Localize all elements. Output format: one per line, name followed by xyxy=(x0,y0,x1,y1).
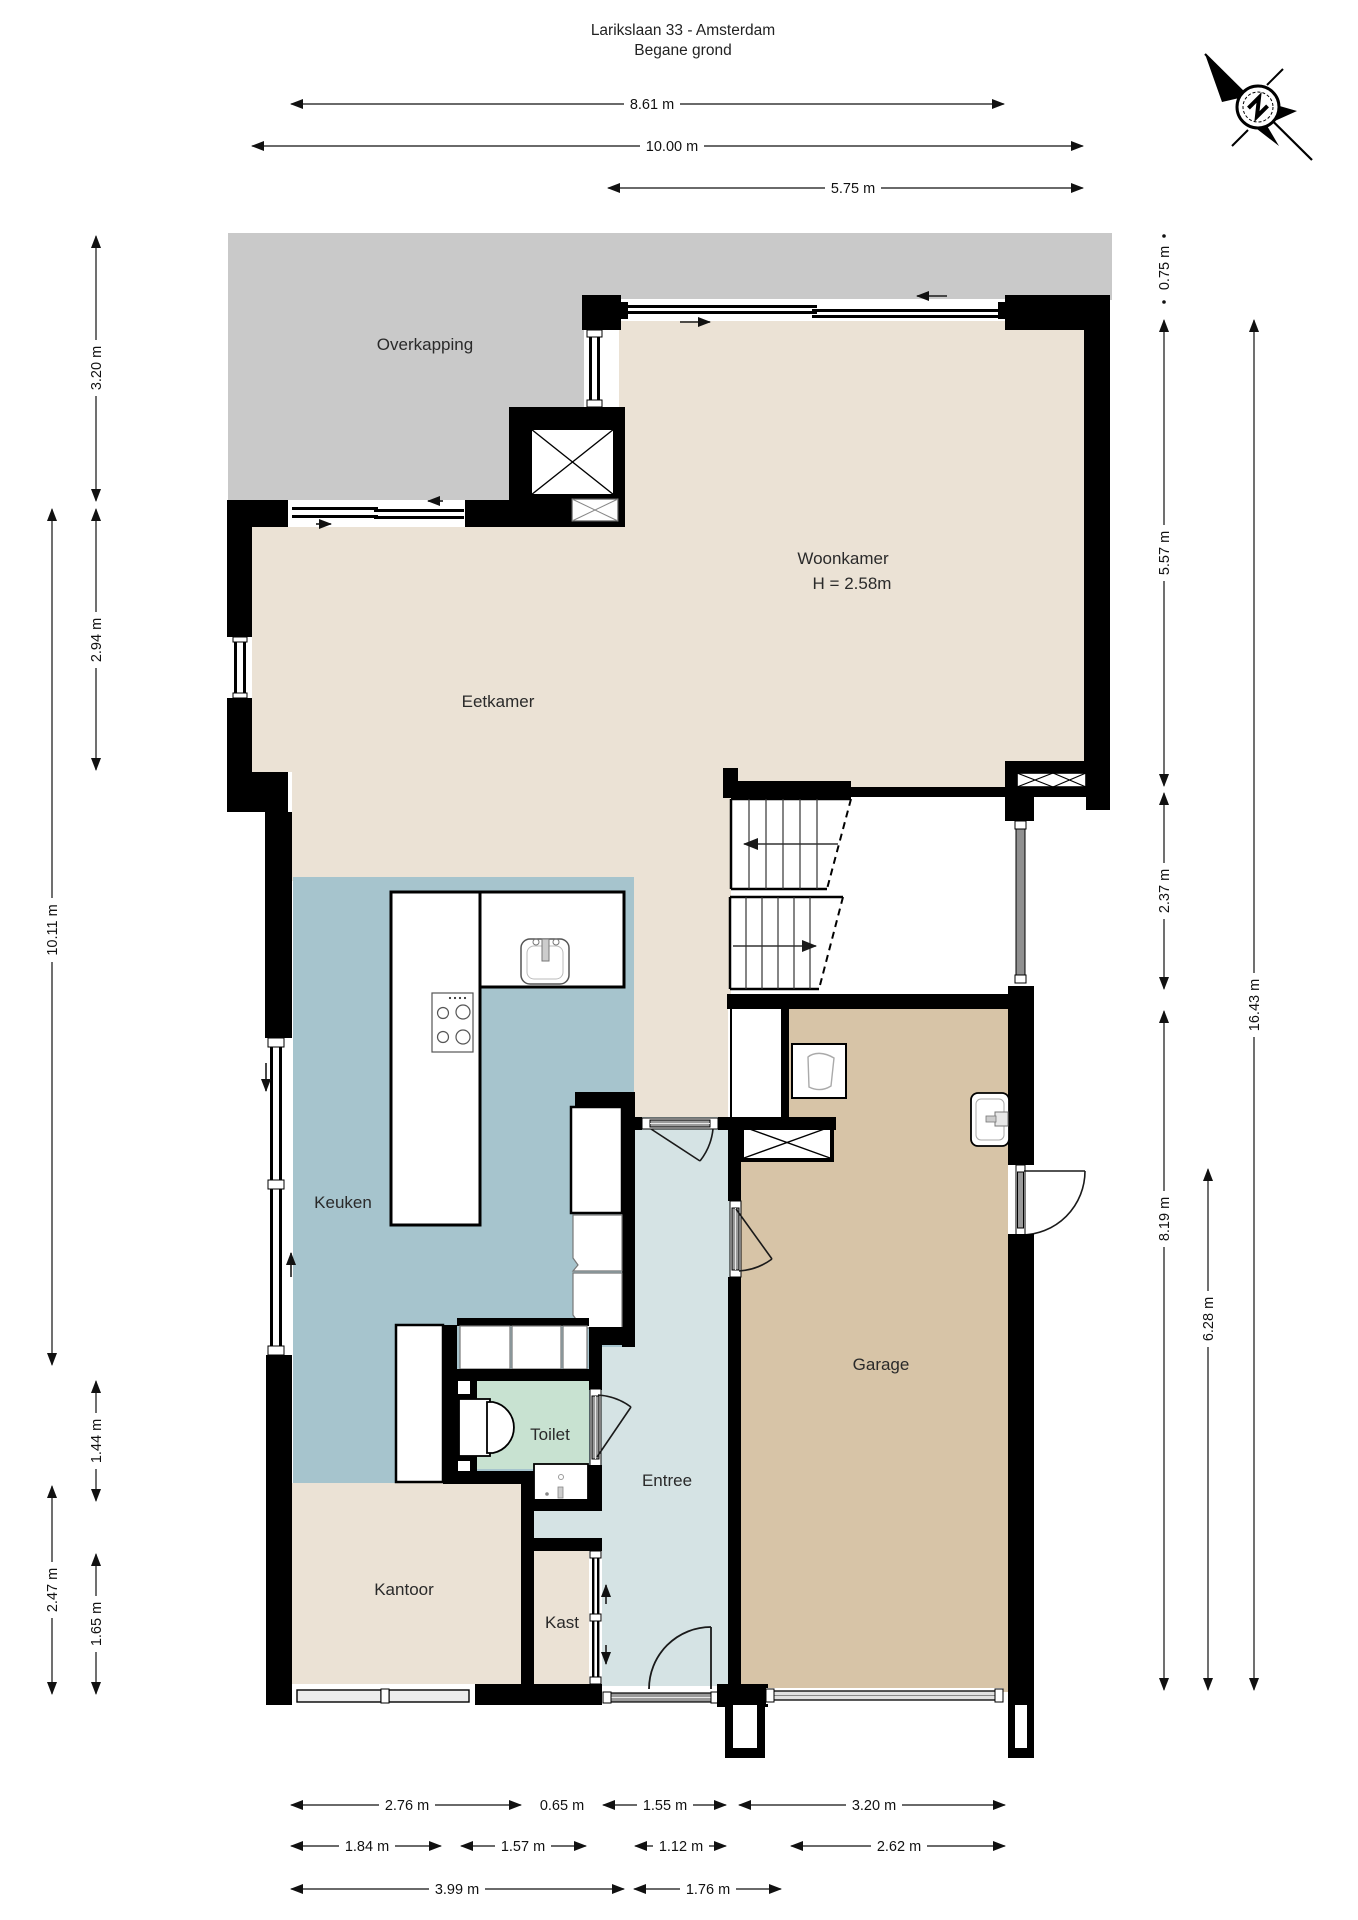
svg-text:Eetkamer: Eetkamer xyxy=(462,692,535,711)
svg-text:0.75 m: 0.75 m xyxy=(1157,246,1173,290)
svg-text:Woonkamer: Woonkamer xyxy=(797,549,889,568)
svg-text:0.65 m: 0.65 m xyxy=(540,1798,584,1814)
svg-text:1.57 m: 1.57 m xyxy=(501,1839,545,1855)
svg-text:10.00 m: 10.00 m xyxy=(646,139,698,155)
svg-text:Entree: Entree xyxy=(642,1471,692,1490)
svg-text:Overkapping: Overkapping xyxy=(377,335,473,354)
svg-text:Kantoor: Kantoor xyxy=(374,1580,434,1599)
svg-text:Larikslaan 33 - Amsterdam: Larikslaan 33 - Amsterdam xyxy=(591,22,775,39)
svg-text:3.20 m: 3.20 m xyxy=(89,346,105,390)
svg-text:5.57 m: 5.57 m xyxy=(1157,531,1173,575)
svg-text:Keuken: Keuken xyxy=(314,1193,372,1212)
svg-text:3.99 m: 3.99 m xyxy=(435,1882,479,1898)
svg-text:H = 2.58m: H = 2.58m xyxy=(813,574,892,593)
svg-text:8.61 m: 8.61 m xyxy=(630,97,674,113)
svg-text:1.12 m: 1.12 m xyxy=(659,1839,703,1855)
svg-text:1.76 m: 1.76 m xyxy=(686,1882,730,1898)
svg-text:2.62 m: 2.62 m xyxy=(877,1839,921,1855)
svg-text:2.76 m: 2.76 m xyxy=(385,1798,429,1814)
svg-text:Kast: Kast xyxy=(545,1613,579,1632)
svg-text:1.55 m: 1.55 m xyxy=(643,1798,687,1814)
svg-text:3.20 m: 3.20 m xyxy=(852,1798,896,1814)
svg-text:Toilet: Toilet xyxy=(530,1425,570,1444)
svg-text:10.11 m: 10.11 m xyxy=(45,904,61,955)
svg-text:Garage: Garage xyxy=(853,1355,910,1374)
svg-text:6.28 m: 6.28 m xyxy=(1201,1297,1217,1341)
svg-text:2.37 m: 2.37 m xyxy=(1157,869,1173,913)
svg-text:2.47 m: 2.47 m xyxy=(45,1568,61,1612)
svg-text:1.84 m: 1.84 m xyxy=(345,1839,389,1855)
svg-text:1.65 m: 1.65 m xyxy=(89,1602,105,1646)
svg-text:16.43 m: 16.43 m xyxy=(1247,979,1263,1031)
svg-text:2.94 m: 2.94 m xyxy=(89,618,105,662)
svg-text:Begane grond: Begane grond xyxy=(634,42,731,59)
svg-text:8.19 m: 8.19 m xyxy=(1157,1197,1173,1241)
svg-text:1.44 m: 1.44 m xyxy=(89,1419,105,1463)
svg-text:5.75 m: 5.75 m xyxy=(831,181,875,197)
